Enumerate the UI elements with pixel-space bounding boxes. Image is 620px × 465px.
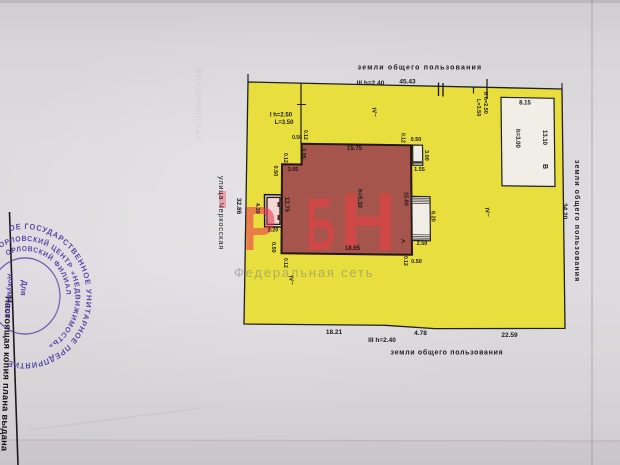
svg-text:улица Черкосская: улица Черкосская — [217, 176, 226, 250]
svg-text:3.00: 3.00 — [423, 150, 429, 161]
svg-text:8.15: 8.15 — [519, 101, 531, 107]
svg-text:0.50: 0.50 — [272, 166, 278, 177]
svg-text:22.59: 22.59 — [501, 332, 518, 339]
svg-text:2.20: 2.20 — [268, 228, 279, 234]
svg-text:В: В — [541, 164, 548, 169]
svg-text:34.20: 34.20 — [561, 203, 568, 220]
svg-text:0.50: 0.50 — [292, 135, 302, 141]
svg-text:Федеральная сеть: Федеральная сеть — [234, 265, 374, 280]
svg-text:Б: Б — [306, 183, 335, 266]
svg-text:18.65: 18.65 — [345, 246, 361, 252]
svg-text:4.30: 4.30 — [254, 203, 260, 214]
svg-text:13.10: 13.10 — [541, 130, 547, 146]
svg-text:3.05: 3.05 — [288, 167, 299, 173]
svg-text:L=3.50: L=3.50 — [475, 99, 481, 116]
svg-text:0.50: 0.50 — [411, 259, 422, 265]
svg-text:0.50: 0.50 — [270, 242, 276, 253]
svg-text:45.43: 45.43 — [399, 79, 416, 86]
svg-text:3.05: 3.05 — [300, 148, 306, 159]
svg-text:0.12: 0.12 — [302, 130, 308, 140]
svg-text:0.50: 0.50 — [411, 137, 422, 143]
svg-text:15.75: 15.75 — [347, 146, 363, 152]
svg-text:земли общего пользования: земли общего пользования — [573, 160, 581, 282]
svg-text:II h=2.50: II h=2.50 — [482, 92, 488, 114]
svg-text:15.80: 15.80 — [403, 192, 409, 206]
svg-text:h=5.30: h=5.30 — [356, 189, 362, 209]
svg-text:2.50: 2.50 — [417, 241, 428, 247]
svg-text:Н: Н — [340, 176, 396, 267]
svg-text:32.86: 32.86 — [235, 198, 242, 215]
svg-text:L=3.50: L=3.50 — [275, 120, 295, 126]
svg-text:18.21: 18.21 — [326, 329, 343, 336]
svg-text:Для: Для — [19, 280, 29, 297]
svg-text:Настоящая копия плана выдана: Настоящая копия плана выдана — [0, 296, 13, 452]
svg-text:земли общего пользования: земли общего пользования — [358, 64, 483, 72]
svg-text:>: > — [401, 237, 406, 246]
svg-text:0.12: 0.12 — [402, 256, 408, 266]
svg-text:1.55: 1.55 — [414, 167, 425, 173]
svg-text:12.75: 12.75 — [283, 197, 289, 213]
svg-text:0.12: 0.12 — [400, 133, 406, 143]
svg-text:Владимирская: Владимирская — [194, 68, 204, 141]
svg-text:земли общего пользования: земли общего пользования — [391, 349, 504, 357]
svg-text:0.12: 0.12 — [282, 153, 288, 163]
svg-text:III h=2.40: III h=2.40 — [368, 337, 396, 344]
svg-text:0.12: 0.12 — [282, 258, 288, 268]
svg-text:III h=2.40: III h=2.40 — [357, 80, 385, 87]
svg-text:6.20: 6.20 — [430, 211, 436, 222]
svg-text:4.78: 4.78 — [414, 330, 427, 337]
svg-text:I h=2.50: I h=2.50 — [270, 113, 293, 119]
svg-text:h=3.00: h=3.00 — [514, 129, 520, 149]
